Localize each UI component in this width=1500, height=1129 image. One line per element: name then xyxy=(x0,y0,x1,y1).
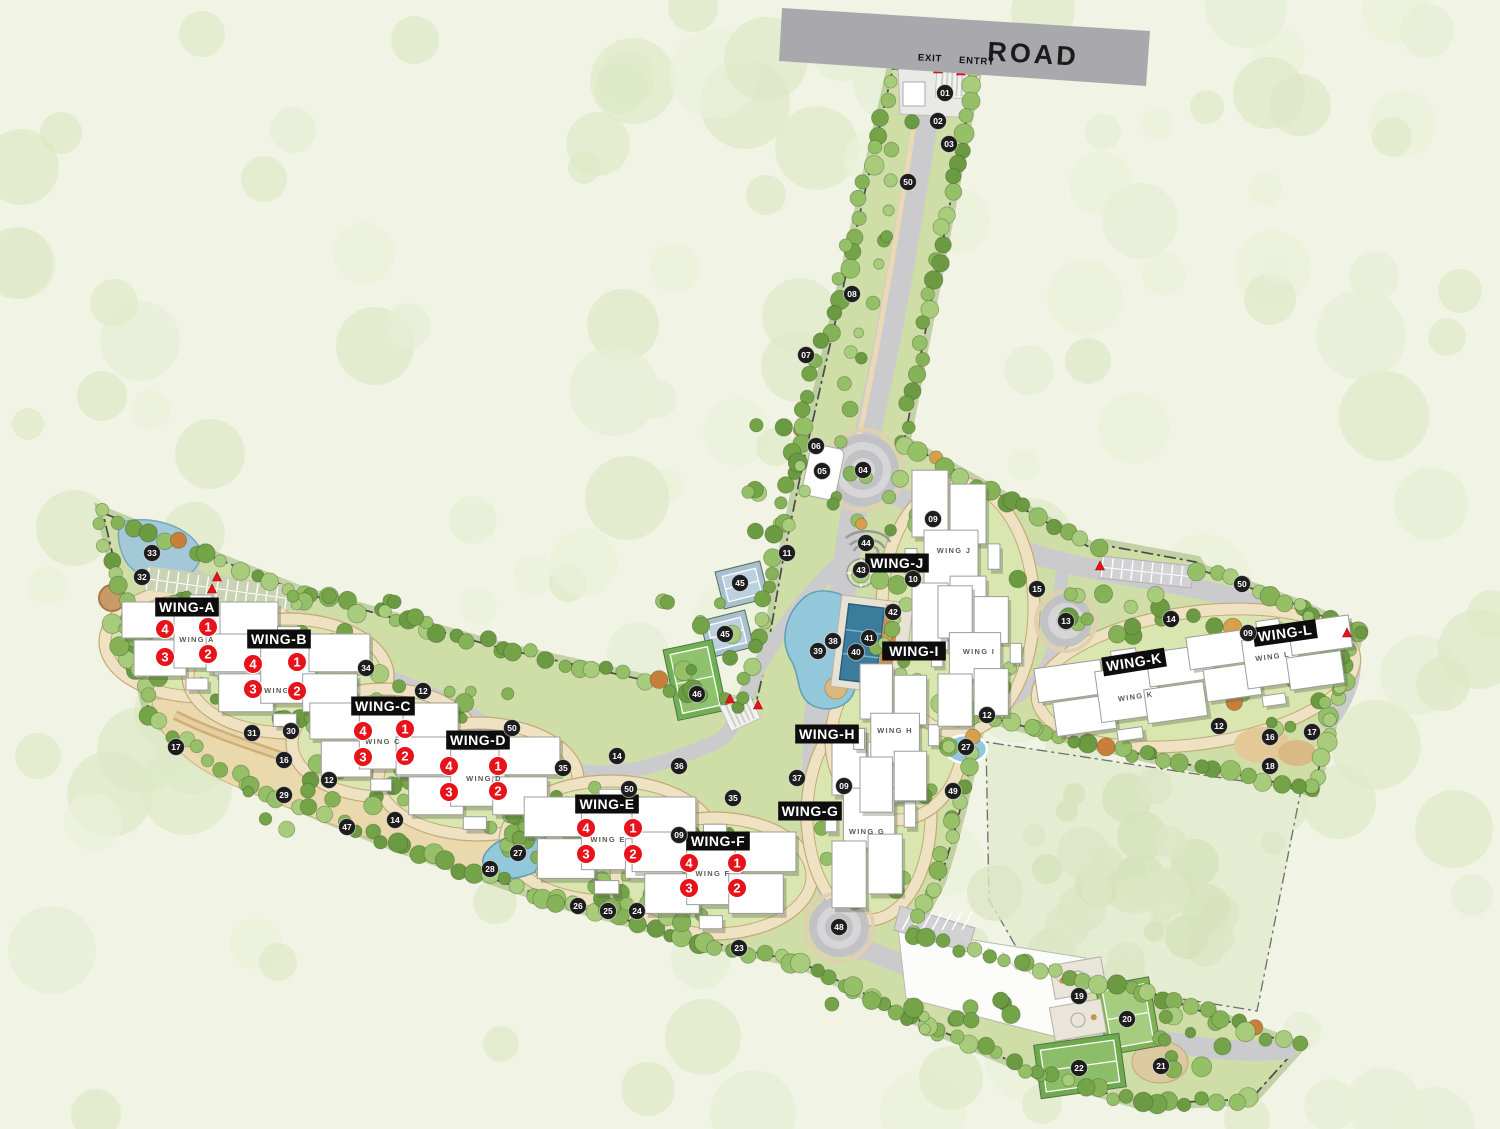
tree xyxy=(583,661,599,677)
map-marker-label-08: 08 xyxy=(847,289,857,299)
foliage-blob xyxy=(1144,922,1164,942)
map-marker-label-17: 17 xyxy=(171,742,181,752)
unit-badge-label-E-1: 1 xyxy=(629,821,636,836)
tree xyxy=(1229,1094,1245,1110)
unit-badge-label-A-2: 2 xyxy=(204,647,211,662)
tree xyxy=(1221,760,1241,780)
tree xyxy=(301,783,316,798)
unit-badge-label-F-4: 4 xyxy=(685,856,693,871)
tree xyxy=(794,417,813,436)
unit-badge-label-E-3: 3 xyxy=(582,847,589,862)
foliage-blob xyxy=(131,390,171,430)
map-marker-label-34: 34 xyxy=(361,663,371,673)
tree xyxy=(1195,1092,1209,1106)
foliage-blob xyxy=(1154,826,1186,858)
wing-chip-label-G: WING-G xyxy=(782,803,839,819)
tree xyxy=(839,239,852,252)
map-marker-label-45: 45 xyxy=(735,578,745,588)
foliage-blob xyxy=(1415,790,1493,868)
tree xyxy=(827,498,839,510)
unit-badge-label-E-2: 2 xyxy=(629,847,636,862)
map-marker-label-07: 07 xyxy=(801,350,811,360)
tree xyxy=(782,519,795,532)
map-marker-label-45: 45 xyxy=(720,629,730,639)
map-marker-label-30: 30 xyxy=(286,726,296,736)
map-marker-label-38: 38 xyxy=(828,636,838,646)
map-marker-label-49: 49 xyxy=(948,786,958,796)
tree xyxy=(435,851,454,870)
tree xyxy=(1319,696,1331,708)
tree xyxy=(924,271,943,290)
foliage-blob xyxy=(1045,904,1089,948)
tree xyxy=(1107,1093,1120,1106)
foliage-blob xyxy=(241,156,287,202)
unit-badge-label-C-2: 2 xyxy=(401,749,408,764)
foliage-blob xyxy=(1316,290,1406,380)
tree xyxy=(835,436,848,449)
foliage-blob xyxy=(1451,874,1493,916)
map-marker-label-50: 50 xyxy=(1237,579,1247,589)
tree xyxy=(842,401,858,417)
map-marker-label-06: 06 xyxy=(811,441,821,451)
tree xyxy=(407,609,424,626)
map-marker-label-47: 47 xyxy=(342,822,352,832)
tree xyxy=(96,503,109,516)
unit-badge-label-A-3: 3 xyxy=(161,650,168,665)
tree xyxy=(141,688,156,703)
foliage-blob xyxy=(333,222,395,284)
tree xyxy=(393,680,406,693)
tree xyxy=(537,652,554,669)
foliage-blob xyxy=(967,865,1023,921)
tree xyxy=(1355,626,1368,639)
tree xyxy=(755,612,769,626)
map-marker-label-14: 14 xyxy=(390,815,400,825)
tree xyxy=(1078,1079,1096,1097)
tree xyxy=(444,686,455,697)
tree xyxy=(775,419,792,436)
tree xyxy=(892,470,909,487)
tree xyxy=(261,573,279,591)
map-marker-label-01: 01 xyxy=(940,88,950,98)
tree xyxy=(348,604,367,623)
guard-booth xyxy=(903,82,925,106)
foliage-blob xyxy=(1372,117,1412,157)
tree xyxy=(1183,998,1199,1014)
foliage-blob xyxy=(90,279,138,327)
tree xyxy=(1090,539,1108,557)
tree xyxy=(747,523,763,539)
tree xyxy=(196,544,215,563)
map-marker-label-39: 39 xyxy=(813,646,823,656)
foliage-blob xyxy=(1115,876,1153,914)
tree xyxy=(754,591,770,607)
exit-label: EXIT xyxy=(918,52,943,64)
foliage-blob xyxy=(1065,338,1111,384)
tree xyxy=(874,259,884,269)
unit-badge-label-F-1: 1 xyxy=(733,856,740,871)
tree xyxy=(882,490,895,503)
tree xyxy=(1192,1057,1212,1077)
tree xyxy=(1140,745,1154,759)
tree xyxy=(949,1011,965,1027)
foliage-blob xyxy=(514,555,554,595)
foliage-blob xyxy=(550,529,618,597)
building-name-C: WING C xyxy=(365,737,401,746)
tree xyxy=(190,740,203,753)
tree xyxy=(778,477,795,494)
east-garden-mound-2 xyxy=(1278,740,1316,766)
foliage-blob xyxy=(1339,371,1429,461)
tree xyxy=(96,539,109,552)
tree xyxy=(813,333,829,349)
tree xyxy=(936,934,950,948)
foliage-blob xyxy=(746,175,786,215)
tree xyxy=(1170,754,1188,772)
site-plan-svg: WING AWING-A4132WING BWING-B4132WING CWI… xyxy=(0,0,1500,1129)
map-marker-label-16: 16 xyxy=(1265,732,1275,742)
tree xyxy=(707,941,722,956)
foliage-blob xyxy=(1032,854,1062,884)
tree xyxy=(921,288,934,301)
tree xyxy=(917,928,936,947)
map-marker-label-37: 37 xyxy=(792,773,802,783)
tree xyxy=(902,421,915,434)
tree xyxy=(977,1037,994,1054)
tree xyxy=(388,833,408,853)
tree xyxy=(243,786,254,797)
map-marker-label-50: 50 xyxy=(903,177,913,187)
map-marker-label-14: 14 xyxy=(1166,614,1176,624)
tree xyxy=(1159,1010,1172,1023)
map-marker-label-04: 04 xyxy=(858,465,868,475)
tree xyxy=(863,992,881,1010)
foliage-blob xyxy=(1085,114,1121,150)
wing-chip-label-B: WING-B xyxy=(251,631,307,647)
tree xyxy=(504,643,522,661)
tree xyxy=(959,109,973,123)
tree xyxy=(1276,595,1293,612)
map-marker-label-10: 10 xyxy=(908,574,918,584)
tree xyxy=(1049,964,1063,978)
unit-badge-label-B-3: 3 xyxy=(249,682,256,697)
tree xyxy=(742,486,755,499)
foliage-blob xyxy=(64,793,122,851)
foliage-blob xyxy=(1248,172,1282,206)
foliage-blob xyxy=(1261,831,1285,855)
tree xyxy=(811,964,824,977)
tree xyxy=(1072,531,1088,547)
tree xyxy=(933,846,948,861)
map-marker-label-33: 33 xyxy=(147,548,157,558)
map-marker-label-19: 19 xyxy=(1074,991,1084,1001)
map-marker-label-48: 48 xyxy=(834,922,844,932)
tree xyxy=(872,109,889,126)
tree xyxy=(993,992,1009,1008)
map-marker-label-27: 27 xyxy=(961,742,971,752)
tree xyxy=(961,758,979,776)
foliage-blob xyxy=(179,11,225,57)
unit-badge-label-F-2: 2 xyxy=(733,881,740,896)
tree xyxy=(1236,1022,1256,1042)
wing-building xyxy=(854,664,942,816)
building-name-F: WING F xyxy=(696,869,731,878)
tree xyxy=(316,806,332,822)
tree xyxy=(929,861,947,879)
entry-label: ENTRY xyxy=(959,55,995,68)
map-marker-label-43: 43 xyxy=(856,565,866,575)
tree xyxy=(1025,719,1041,735)
tree xyxy=(170,532,186,548)
tree xyxy=(1259,1033,1272,1046)
tree xyxy=(259,813,272,826)
tree xyxy=(927,883,942,898)
wing-chip-label-F: WING-F xyxy=(691,833,745,849)
wing-chip-label-A: WING-A xyxy=(159,599,215,615)
foliage-blob xyxy=(595,62,647,114)
wing-chip-label-E: WING-E xyxy=(579,796,634,812)
tree xyxy=(524,644,538,658)
tree xyxy=(109,576,127,594)
tree xyxy=(737,672,750,685)
map-marker-label-50: 50 xyxy=(624,784,634,794)
foliage-blob xyxy=(1261,250,1295,284)
tree xyxy=(325,791,341,807)
tree xyxy=(459,634,475,650)
tree xyxy=(279,821,295,837)
foliage-blob xyxy=(1047,259,1123,335)
map-marker-label-12: 12 xyxy=(1214,721,1224,731)
tree xyxy=(749,639,763,653)
tree xyxy=(213,762,228,777)
unit-badge-label-C-3: 3 xyxy=(359,750,366,765)
tree xyxy=(1002,1005,1020,1023)
tree xyxy=(856,518,867,529)
tree xyxy=(1119,1089,1133,1103)
unit-badge-label-E-4: 4 xyxy=(582,821,590,836)
tree xyxy=(843,977,862,996)
map-marker-label-31: 31 xyxy=(247,728,257,738)
foliage-blob xyxy=(568,152,600,184)
tree xyxy=(1293,1036,1308,1051)
tree xyxy=(884,174,897,187)
tree xyxy=(790,953,810,973)
map-marker-label-23: 23 xyxy=(734,943,744,953)
wing-chip-label-D: WING-D xyxy=(450,732,506,748)
unit-badge-label-F-3: 3 xyxy=(685,881,692,896)
tree xyxy=(802,366,817,381)
wing-chip-label-C: WING-C xyxy=(355,698,411,714)
tree xyxy=(908,366,925,383)
tree xyxy=(547,895,565,913)
tree xyxy=(884,75,897,88)
tree xyxy=(1133,1092,1153,1112)
tree xyxy=(871,571,890,590)
tree xyxy=(916,353,930,367)
tree xyxy=(1007,1054,1023,1070)
foliage-blob xyxy=(637,379,677,419)
foliage-blob xyxy=(1394,467,1468,541)
tree xyxy=(962,92,980,110)
map-marker-label-09: 09 xyxy=(674,830,684,840)
tree xyxy=(1156,753,1171,768)
map-marker-label-13: 13 xyxy=(1061,616,1071,626)
tree xyxy=(946,830,960,844)
foliage-blob xyxy=(385,303,431,349)
tree xyxy=(946,168,961,183)
tree xyxy=(139,524,157,542)
tree xyxy=(1285,721,1296,732)
foliage-blob xyxy=(28,566,68,606)
tree xyxy=(287,590,299,602)
unit-badge-label-D-2: 2 xyxy=(494,784,501,799)
map-marker-label-40: 40 xyxy=(851,647,861,657)
unit-badge-label-A-4: 4 xyxy=(161,622,169,637)
tree xyxy=(854,328,864,338)
tree xyxy=(1266,717,1277,728)
tree xyxy=(1241,768,1257,784)
map-marker-label-50: 50 xyxy=(507,723,517,733)
tree xyxy=(1214,1038,1231,1055)
tree xyxy=(663,685,676,698)
map-marker-label-16: 16 xyxy=(279,755,289,765)
tree xyxy=(1212,1011,1230,1029)
foliage-blob xyxy=(1102,183,1178,259)
map-marker-label-02: 02 xyxy=(933,116,943,126)
map-marker-label-09: 09 xyxy=(839,781,849,791)
tree xyxy=(765,525,783,543)
tree xyxy=(855,175,869,189)
tree xyxy=(498,872,511,885)
foliage-blob xyxy=(175,419,245,489)
tree xyxy=(1009,570,1027,588)
tree xyxy=(714,598,725,609)
map-marker-label-03: 03 xyxy=(944,139,954,149)
foliage-blob xyxy=(1190,90,1224,124)
tree xyxy=(1124,600,1137,613)
tree xyxy=(945,184,962,201)
map-marker-label-36: 36 xyxy=(674,761,684,771)
map-marker-label-11: 11 xyxy=(783,548,792,558)
map-marker-label-09: 09 xyxy=(1243,628,1253,638)
tree xyxy=(1089,975,1108,994)
foliage-blob xyxy=(15,733,61,779)
foliage-blob xyxy=(1004,345,1054,395)
foliage-blob xyxy=(270,107,316,153)
map-marker-label-20: 20 xyxy=(1122,1014,1132,1024)
tree xyxy=(904,998,924,1018)
foliage-blob xyxy=(1428,318,1466,356)
tree xyxy=(881,93,896,108)
unit-badge-label-A-1: 1 xyxy=(204,620,211,635)
map-marker-label-44: 44 xyxy=(861,538,871,548)
foliage-blob xyxy=(919,1046,983,1110)
tree xyxy=(1323,713,1336,726)
tree xyxy=(364,796,383,815)
foliage-blob xyxy=(585,456,669,540)
tree xyxy=(231,562,249,580)
tree xyxy=(1108,625,1126,643)
foliage-blob xyxy=(621,1062,675,1116)
tree xyxy=(1046,519,1061,534)
tree xyxy=(799,485,811,497)
tree xyxy=(723,650,738,665)
tree xyxy=(1139,984,1156,1001)
tree xyxy=(1014,955,1030,971)
tree xyxy=(885,524,897,536)
tree xyxy=(953,945,965,957)
foliage-blob xyxy=(1136,768,1172,804)
tree xyxy=(963,1012,979,1028)
map-marker-label-32: 32 xyxy=(137,572,147,582)
map-marker-label-25: 25 xyxy=(603,906,613,916)
tree xyxy=(111,516,125,530)
tree xyxy=(502,688,514,700)
tree xyxy=(1097,738,1115,756)
tree xyxy=(750,419,763,432)
tree xyxy=(757,945,773,961)
tree xyxy=(919,1024,930,1035)
foliage-blob xyxy=(12,408,44,440)
foliage-blob xyxy=(449,496,497,544)
tree xyxy=(686,664,697,675)
unit-badge-label-D-1: 1 xyxy=(494,759,501,774)
tree xyxy=(837,377,851,391)
tree xyxy=(93,518,105,530)
tree xyxy=(1081,613,1093,625)
unit-badge-label-B-2: 2 xyxy=(293,684,300,699)
tree xyxy=(951,469,969,487)
tree xyxy=(1062,1074,1074,1086)
tree xyxy=(300,799,317,816)
tree xyxy=(1032,963,1048,979)
tree xyxy=(1292,779,1307,794)
tree xyxy=(951,1030,965,1044)
tree xyxy=(1186,609,1200,623)
map-marker-label-26: 26 xyxy=(573,901,583,911)
tree xyxy=(1064,588,1077,601)
tree xyxy=(794,402,810,418)
tree xyxy=(1177,1098,1190,1111)
tree xyxy=(943,813,960,830)
foliage-blob xyxy=(1063,783,1085,805)
tree xyxy=(899,396,914,411)
tree xyxy=(1094,585,1112,603)
map-marker-label-12: 12 xyxy=(324,775,334,785)
tree xyxy=(1031,1065,1044,1078)
tree xyxy=(379,605,392,618)
map-marker-label-35: 35 xyxy=(728,793,738,803)
tree xyxy=(374,836,387,849)
building-name-H: WING H xyxy=(877,726,913,735)
foliage-blob xyxy=(1438,269,1482,313)
unit-badge-label-B-4: 4 xyxy=(249,657,257,672)
map-marker-label-12: 12 xyxy=(982,710,992,720)
tree xyxy=(464,864,484,884)
unit-badge-label-C-1: 1 xyxy=(401,722,408,737)
map-marker-label-15: 15 xyxy=(1032,584,1042,594)
tree xyxy=(775,497,787,509)
tree xyxy=(1016,498,1030,512)
tree xyxy=(827,305,842,320)
map-marker-label-17: 17 xyxy=(1307,727,1317,737)
map-marker-label-42: 42 xyxy=(888,607,898,617)
foliage-blob xyxy=(650,243,700,293)
tree xyxy=(912,336,927,351)
tree xyxy=(616,665,630,679)
tree xyxy=(935,237,951,253)
wing-chip-label-J: WING-J xyxy=(870,555,924,571)
